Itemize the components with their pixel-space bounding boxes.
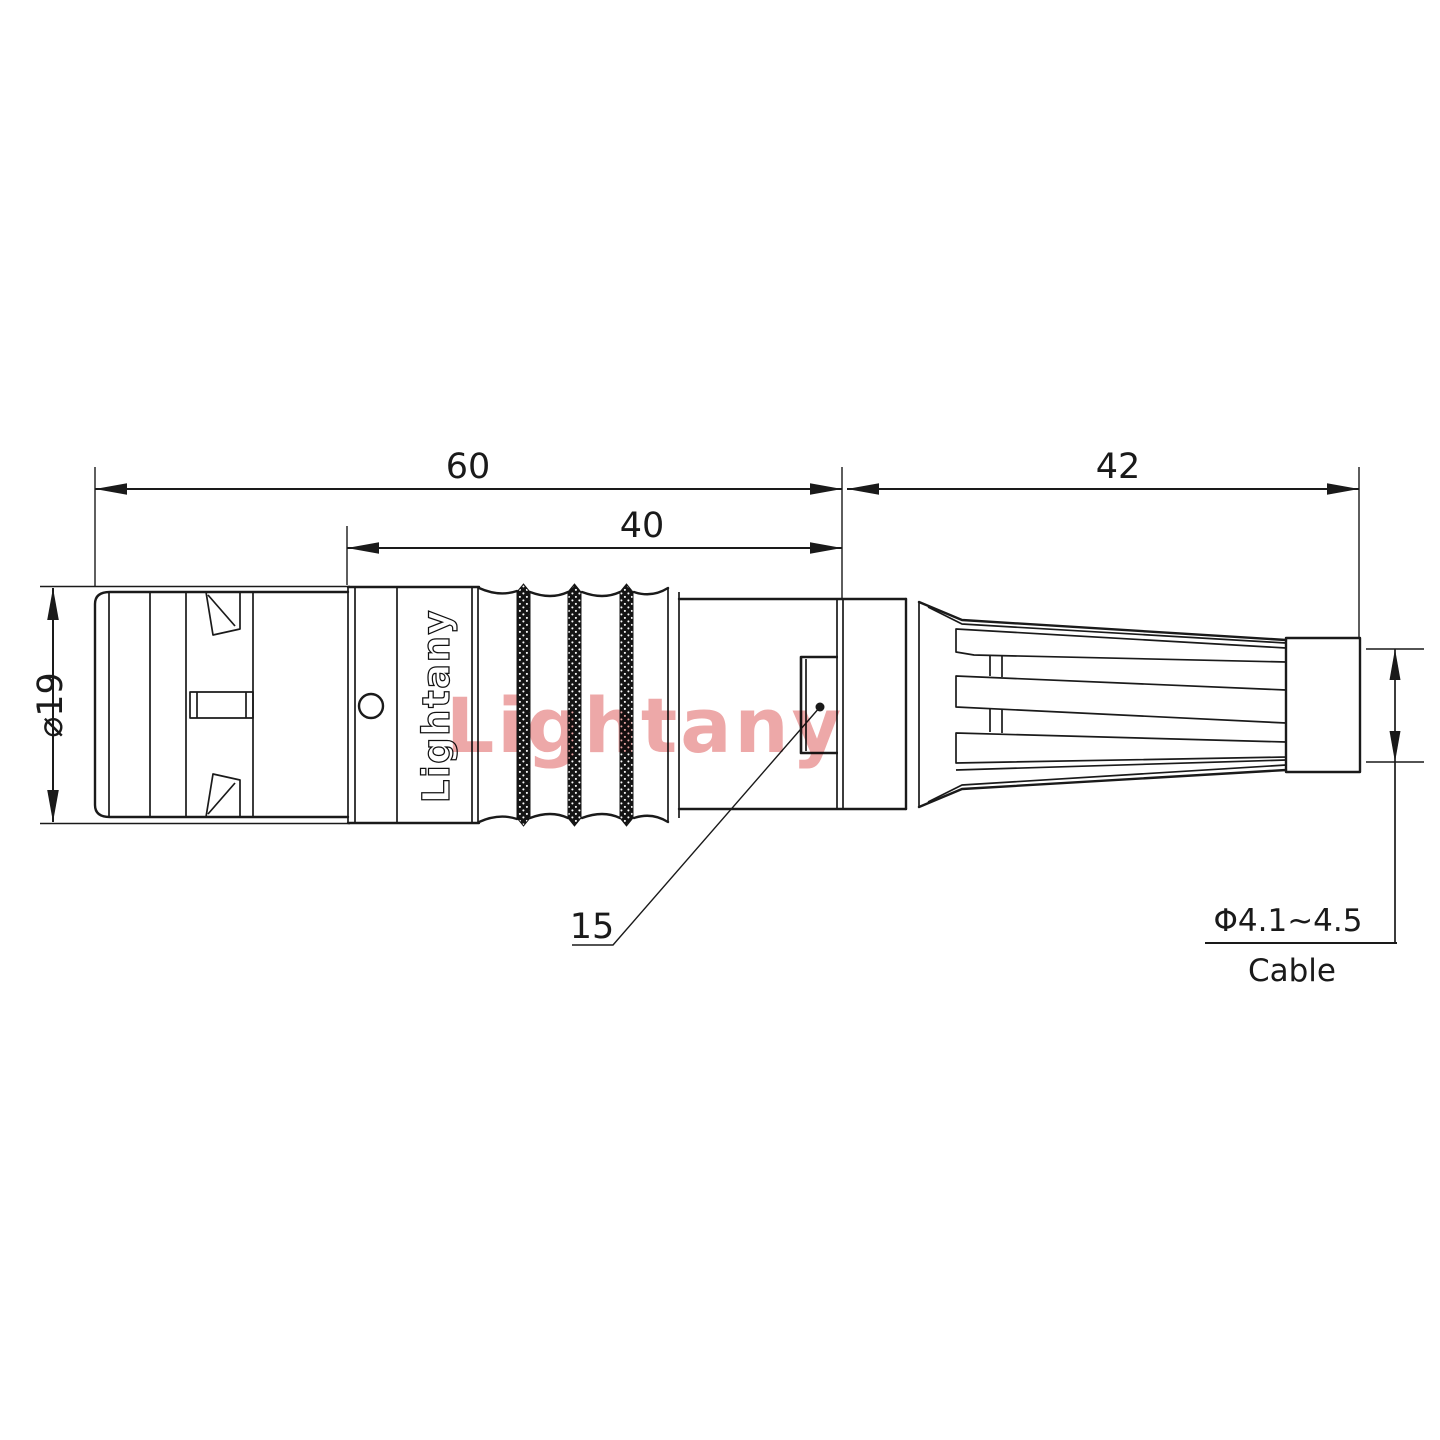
dimension-40: 40 (347, 506, 842, 585)
bayonet-key-bottom-facet (208, 783, 235, 814)
dim-40-arrow-right (810, 542, 842, 554)
fin-stub-upper (990, 655, 1002, 677)
fin-lower (956, 733, 1286, 763)
dim-40-arrow-left (347, 542, 379, 554)
dim-60-label: 60 (446, 447, 491, 487)
dim-15-label: 15 (570, 907, 615, 947)
strain-relief-top-edge (919, 602, 1286, 640)
dimension-42: 42 (847, 447, 1359, 637)
dim-42-arrow-right (1327, 483, 1359, 495)
cable-label: Cable (1248, 953, 1336, 989)
key-window-inner-lines (197, 692, 246, 718)
dim-dia19-label: ⌀19 (31, 672, 71, 738)
cable-dim-arrow-bottom (1390, 731, 1401, 762)
dimension-cable: Φ4.1~4.5 Cable (1205, 649, 1424, 989)
front-shell-outline (95, 592, 348, 817)
dim-dia19-arrow-top (47, 588, 59, 620)
connector-drawing: 60 40 42 ⌀19 (0, 0, 1440, 1440)
front-shell (95, 592, 348, 817)
dim-dia19-arrow-bottom (47, 790, 59, 822)
cable-end-cap (1286, 638, 1360, 772)
cable-diameter-label: Φ4.1~4.5 (1214, 903, 1363, 939)
fin-stub-lower (990, 709, 1002, 733)
strain-relief-bottom-inner (928, 765, 1286, 802)
dim-60-arrow-right (810, 483, 842, 495)
fin-middle (956, 676, 1286, 723)
cross-hole (359, 694, 383, 718)
cable-dim-arrow-top (1390, 649, 1401, 680)
dim-40-label: 40 (620, 506, 665, 546)
bayonet-key-top-facet (208, 595, 235, 626)
watermark-text: Lightany (446, 681, 844, 770)
technical-drawing-canvas: 60 40 42 ⌀19 (0, 0, 1440, 1440)
ring-section-dividers (348, 587, 397, 823)
key-window (190, 692, 253, 718)
dimension-60: 60 (95, 447, 842, 598)
dim-60-arrow-left (95, 483, 127, 495)
strain-relief (906, 599, 1286, 809)
dim-42-arrow-left (847, 483, 879, 495)
dim-42-label: 42 (1096, 447, 1141, 487)
